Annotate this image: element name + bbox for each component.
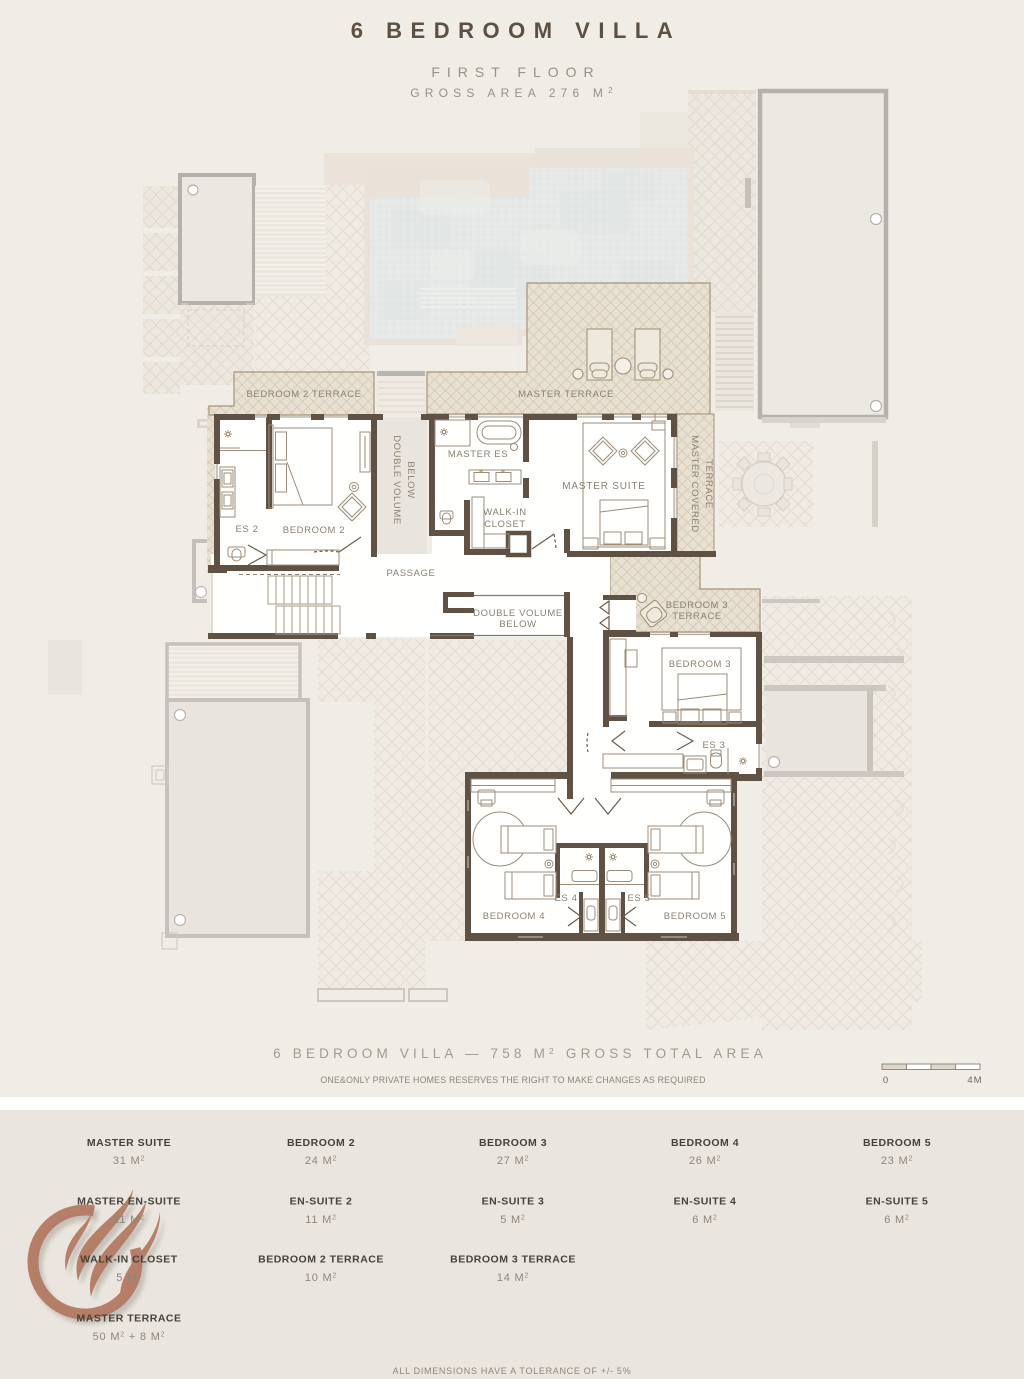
svg-text:BEDROOM 5: BEDROOM 5: [664, 911, 726, 922]
svg-text:CLOSET: CLOSET: [484, 519, 526, 530]
svg-text:BELOW: BELOW: [499, 619, 536, 630]
svg-text:EN-SUITE 2: EN-SUITE 2: [290, 1196, 353, 1208]
svg-text:BEDROOM 3 TERRACE: BEDROOM 3 TERRACE: [450, 1254, 576, 1266]
svg-text:ALL DIMENSIONS HAVE A TOLERANC: ALL DIMENSIONS HAVE A TOLERANCE OF +/- 5…: [393, 1366, 632, 1376]
svg-text:PASSAGE: PASSAGE: [387, 568, 436, 579]
svg-text:MASTER ES: MASTER ES: [448, 449, 508, 460]
svg-text:50 M2 + 8 M2: 50 M2 + 8 M2: [93, 1331, 166, 1343]
svg-text:11 M2: 11 M2: [113, 1214, 145, 1226]
svg-text:BEDROOM 5: BEDROOM 5: [863, 1137, 931, 1149]
svg-text:14 M2: 14 M2: [497, 1272, 529, 1284]
svg-text:EN-SUITE 3: EN-SUITE 3: [482, 1196, 545, 1208]
svg-text:MASTER SUITE: MASTER SUITE: [562, 481, 646, 492]
svg-text:ES 2: ES 2: [236, 524, 259, 535]
svg-text:DOUBLE VOLUME: DOUBLE VOLUME: [473, 608, 563, 619]
svg-text:TERRACE: TERRACE: [703, 459, 714, 509]
svg-text:GROSS AREA 276 M2: GROSS AREA 276 M2: [410, 86, 618, 100]
svg-text:ES 4: ES 4: [555, 893, 578, 904]
svg-text:23 M2: 23 M2: [881, 1155, 913, 1167]
svg-text:BEDROOM 2: BEDROOM 2: [283, 525, 345, 536]
svg-text:24 M2: 24 M2: [305, 1155, 337, 1167]
svg-text:27 M2: 27 M2: [497, 1155, 529, 1167]
svg-text:BEDROOM 4: BEDROOM 4: [483, 911, 545, 922]
svg-text:MASTER EN-SUITE: MASTER EN-SUITE: [77, 1196, 181, 1208]
svg-text:BEDROOM 3: BEDROOM 3: [666, 600, 728, 611]
svg-text:0: 0: [883, 1075, 889, 1086]
svg-text:4M: 4M: [967, 1075, 982, 1086]
svg-text:11 M2: 11 M2: [305, 1214, 337, 1226]
svg-text:ONE&ONLY PRIVATE HOMES RESERVE: ONE&ONLY PRIVATE HOMES RESERVES THE RIGH…: [320, 1075, 705, 1085]
svg-text:MASTER SUITE: MASTER SUITE: [87, 1137, 171, 1149]
svg-text:10 M2: 10 M2: [305, 1272, 337, 1284]
svg-text:MASTER TERRACE: MASTER TERRACE: [76, 1313, 181, 1325]
svg-text:BEDROOM 2: BEDROOM 2: [287, 1137, 355, 1149]
svg-text:MASTER COVERED: MASTER COVERED: [689, 435, 700, 533]
svg-text:EN-SUITE 4: EN-SUITE 4: [674, 1196, 737, 1208]
svg-text:DOUBLE VOLUME: DOUBLE VOLUME: [391, 435, 402, 525]
svg-text:BEDROOM 3: BEDROOM 3: [479, 1137, 547, 1149]
svg-text:26 M2: 26 M2: [689, 1155, 721, 1167]
svg-text:ES 3: ES 3: [703, 740, 726, 751]
svg-text:MASTER TERRACE: MASTER TERRACE: [518, 389, 614, 400]
svg-text:WALK-IN: WALK-IN: [483, 507, 526, 518]
svg-text:TERRACE: TERRACE: [672, 611, 722, 622]
svg-text:FIRST FLOOR: FIRST FLOOR: [431, 64, 600, 80]
svg-text:6 BEDROOM VILLA: 6 BEDROOM VILLA: [351, 18, 681, 43]
svg-text:ES 5: ES 5: [628, 893, 651, 904]
svg-text:31 M2: 31 M2: [113, 1155, 145, 1167]
svg-text:WALK-IN CLOSET: WALK-IN CLOSET: [80, 1254, 177, 1266]
svg-text:BEDROOM 3: BEDROOM 3: [669, 659, 731, 670]
svg-text:BEDROOM 4: BEDROOM 4: [671, 1137, 739, 1149]
svg-text:BELOW: BELOW: [405, 461, 416, 498]
svg-text:EN-SUITE 5: EN-SUITE 5: [866, 1196, 929, 1208]
svg-text:6 BEDROOM VILLA — 758 M2 GROSS: 6 BEDROOM VILLA — 758 M2 GROSS TOTAL ARE…: [273, 1046, 767, 1061]
svg-text:BEDROOM 2 TERRACE: BEDROOM 2 TERRACE: [246, 389, 361, 400]
svg-text:BEDROOM 2 TERRACE: BEDROOM 2 TERRACE: [258, 1254, 384, 1266]
